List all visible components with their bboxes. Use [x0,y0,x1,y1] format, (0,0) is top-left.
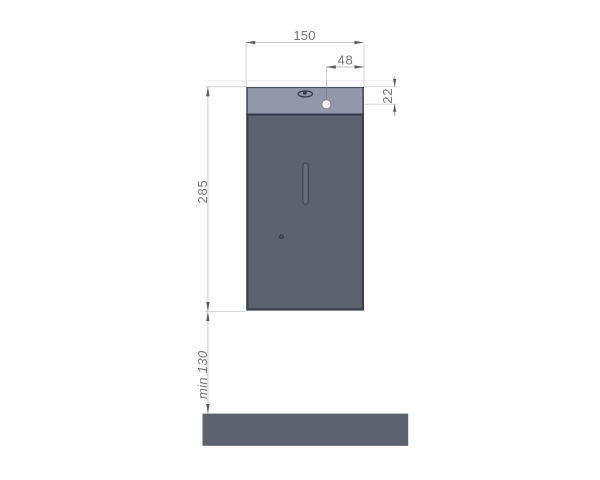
svg-text:min 130: min 130 [195,350,210,399]
svg-text:48: 48 [337,52,353,67]
svg-text:150: 150 [293,28,315,43]
svg-text:22: 22 [380,88,395,104]
svg-text:285: 285 [195,179,210,203]
